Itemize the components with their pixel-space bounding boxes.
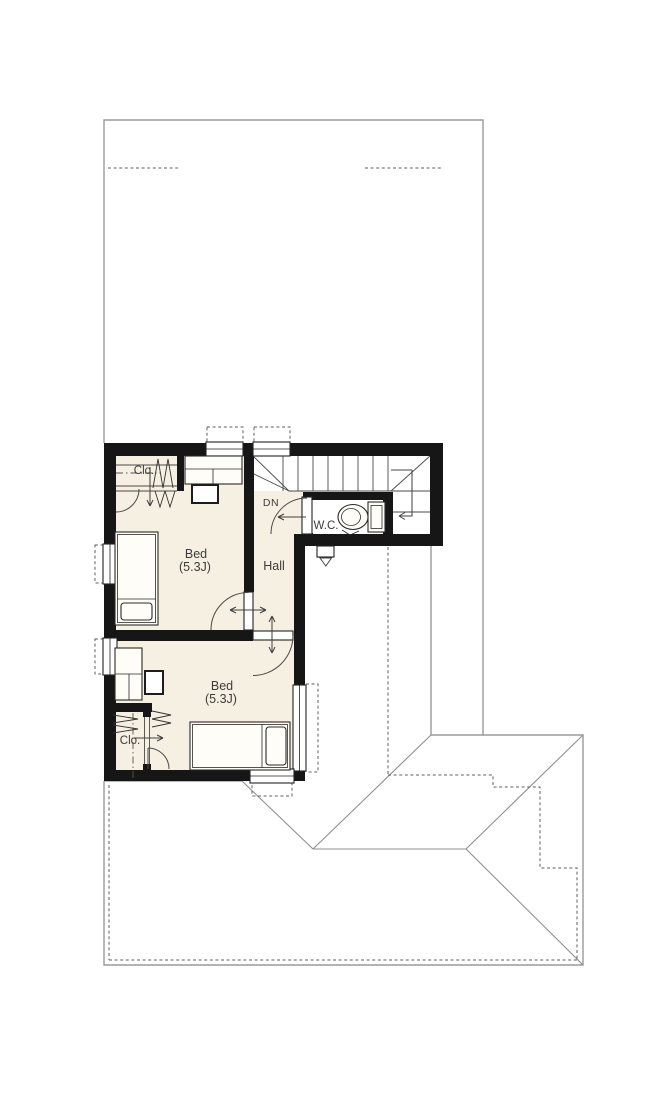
eave-dash-window-left1 — [95, 545, 103, 583]
wall-closet2-post-top — [143, 712, 151, 717]
roof-hip-lower — [466, 849, 583, 965]
pillow-icon — [266, 727, 286, 765]
wall-right-stairblock — [430, 443, 443, 546]
bedroom1-label: Bed — [185, 547, 207, 561]
bedroom2-label: Bed — [211, 679, 233, 693]
window-stairs-b — [253, 442, 290, 456]
window-bedroom2-bottom — [250, 769, 294, 783]
toilet-icon — [338, 502, 385, 535]
eave-dash-window-right — [306, 684, 318, 772]
bed-icon-bedroom2 — [190, 722, 290, 770]
window-stairs-a — [206, 442, 243, 456]
wall-bed1-bed2 — [104, 630, 253, 641]
wc-vent-icon — [317, 546, 334, 566]
wall-closet2-post-bottom — [143, 764, 151, 772]
eave-dash-window-a — [207, 427, 243, 443]
stair-winders — [254, 456, 430, 491]
pillow-icon — [121, 603, 152, 620]
chair-icon — [192, 485, 218, 503]
bedroom1-size-label: (5.3J) — [179, 560, 211, 574]
wc-label: W.C. — [314, 520, 339, 532]
wall-hall-right — [294, 534, 305, 685]
eave-dash-window-left2 — [95, 639, 103, 674]
closet2-label: Clo. — [120, 735, 140, 747]
floor-plan-drawing: Clo. Bed (5.3J) Hall DN W.C. Bed (5.3J) … — [0, 0, 664, 1120]
roof-valley-left — [242, 781, 313, 849]
stairs-down-label: DN — [263, 497, 279, 509]
wall-wc-left-stub — [303, 533, 313, 546]
wall-closet1-right — [177, 456, 184, 491]
wall-closet2-top — [104, 703, 152, 712]
chair-icon — [145, 671, 163, 694]
bed-icon-bedroom1 — [115, 532, 158, 625]
wall-bed1-hall — [244, 456, 254, 592]
window-bedroom2-right — [293, 685, 306, 771]
eave-dash-window-bottom — [252, 783, 292, 796]
bedroom2-size-label: (5.3J) — [205, 692, 237, 706]
roof-hip-upper — [466, 735, 583, 849]
eave-dash-window-b — [254, 427, 290, 443]
closet1-label: Clo. — [134, 465, 154, 477]
wall-wc-top — [303, 492, 393, 500]
roof-valley-right — [313, 735, 431, 849]
floor-plan-canvas: Clo. Bed (5.3J) Hall DN W.C. Bed (5.3J) … — [0, 0, 664, 1120]
hall-label: Hall — [263, 559, 285, 573]
wall-left — [104, 443, 116, 781]
eave-dash-step-path — [388, 775, 577, 961]
wall-wcblock-bottom — [294, 534, 443, 546]
